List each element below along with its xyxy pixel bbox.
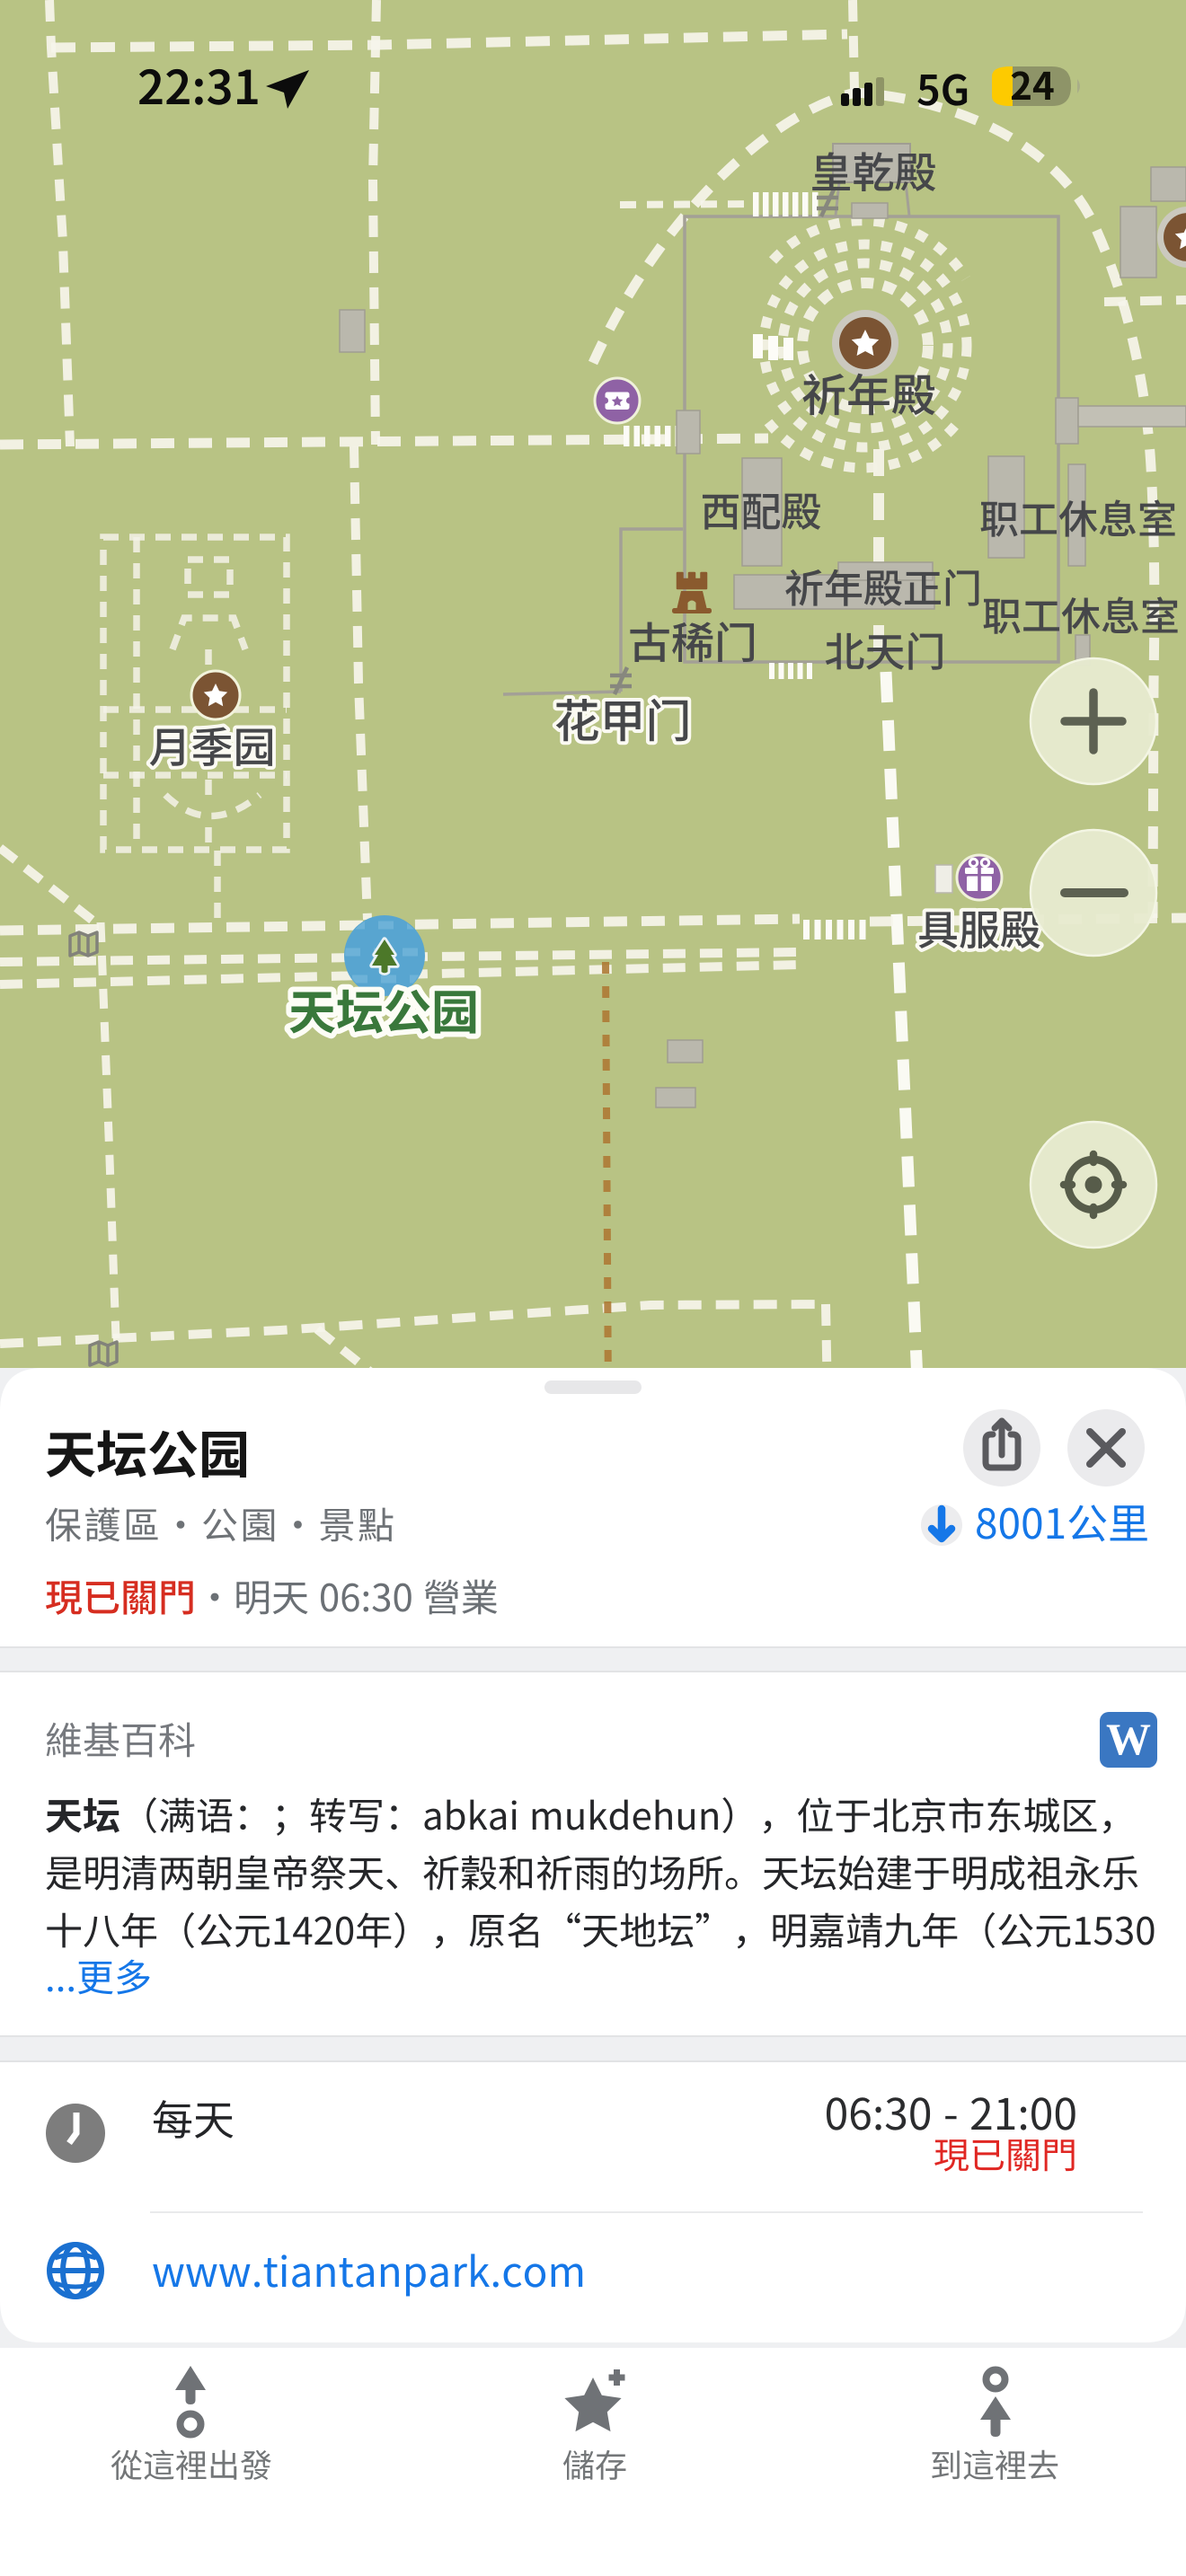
svg-text:W: W <box>1106 1714 1151 1764</box>
